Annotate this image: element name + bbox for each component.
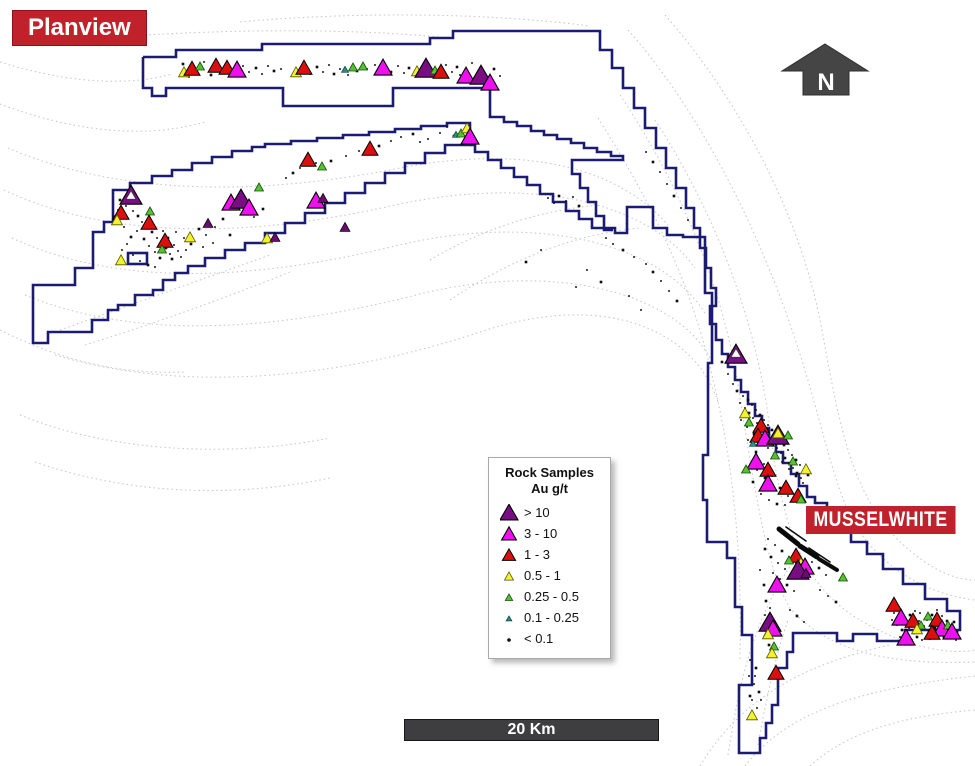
sample-dot bbox=[769, 607, 771, 609]
legend-item-label: < 0.1 bbox=[524, 631, 553, 646]
sample-dot bbox=[752, 417, 754, 419]
planview-map-figure: Planview N MUSSELWHITE Rock Samples Au g… bbox=[0, 0, 975, 766]
sample-dot bbox=[190, 243, 193, 246]
legend-subtitle: Au g/t bbox=[489, 481, 610, 497]
sample-dot bbox=[299, 167, 301, 169]
scale-bar: 20 Km bbox=[404, 719, 659, 741]
sample-dot bbox=[752, 481, 755, 484]
sample-dot bbox=[175, 231, 177, 233]
sample-dot bbox=[763, 463, 765, 465]
sample-dot bbox=[471, 62, 473, 64]
sample-dot bbox=[747, 399, 750, 402]
sample-dot bbox=[408, 67, 411, 70]
sample-dot bbox=[374, 64, 376, 66]
sample-dot bbox=[765, 600, 768, 603]
sample-dot bbox=[936, 609, 938, 611]
sample-dot bbox=[893, 612, 895, 614]
sample-dot bbox=[676, 300, 679, 303]
sample-triangle bbox=[340, 222, 350, 231]
sample-dot bbox=[660, 280, 662, 282]
sample-dot bbox=[540, 249, 542, 251]
sample-triangle bbox=[359, 62, 368, 70]
sample-triangle bbox=[196, 62, 205, 70]
sample-dot bbox=[754, 675, 756, 677]
sample-dot bbox=[746, 426, 748, 428]
sample-dot bbox=[214, 226, 216, 228]
sample-dot bbox=[119, 199, 122, 202]
legend-item: 0.1 - 0.25 bbox=[489, 607, 610, 628]
sample-dot bbox=[760, 699, 762, 701]
sample-dot bbox=[154, 266, 156, 268]
sample-dot bbox=[229, 234, 232, 237]
sample-dot bbox=[248, 71, 250, 73]
north-arrow: N bbox=[778, 40, 874, 107]
sample-dot bbox=[901, 629, 904, 632]
sample-dot bbox=[427, 138, 429, 140]
sample-dot bbox=[891, 619, 893, 621]
sample-triangle bbox=[349, 63, 358, 71]
sample-dot bbox=[210, 74, 213, 77]
sample-dot bbox=[767, 447, 769, 449]
sample-dot bbox=[572, 196, 574, 198]
boundary-top-band-south bbox=[143, 57, 623, 230]
sample-triangle bbox=[146, 207, 155, 215]
sample-dot bbox=[397, 65, 399, 67]
sample-dot bbox=[795, 475, 798, 478]
sample-dot bbox=[575, 286, 577, 288]
sample-dot bbox=[818, 567, 821, 570]
legend-swatch-icon bbox=[500, 630, 524, 648]
sample-dot bbox=[419, 141, 421, 143]
sample-dot bbox=[132, 254, 134, 256]
legend-item: 3 - 10 bbox=[489, 523, 610, 544]
sample-dot bbox=[680, 207, 682, 209]
sample-triangle bbox=[318, 162, 327, 170]
sample-triangle bbox=[141, 215, 157, 229]
sample-triangle bbox=[342, 66, 349, 72]
sample-dot bbox=[748, 675, 750, 677]
sample-dot bbox=[793, 590, 795, 592]
sample-triangle bbox=[770, 642, 779, 650]
sample-dot bbox=[171, 258, 174, 261]
sample-dot bbox=[645, 151, 647, 153]
sample-dot bbox=[727, 373, 729, 375]
sample-dot bbox=[918, 620, 920, 622]
sample-triangle bbox=[362, 141, 378, 155]
sample-triangle bbox=[747, 453, 765, 469]
legend-item-label: 0.1 - 0.25 bbox=[524, 610, 579, 625]
sample-dot bbox=[781, 461, 783, 463]
sample-dot bbox=[316, 66, 319, 69]
sample-dot bbox=[786, 584, 789, 587]
sample-dot bbox=[328, 64, 330, 66]
sample-dot bbox=[141, 221, 143, 223]
sample-dot bbox=[673, 195, 676, 198]
legend-swatch-icon bbox=[500, 546, 524, 564]
sample-dot bbox=[659, 171, 661, 173]
sample-dot bbox=[921, 639, 923, 641]
sample-dot bbox=[222, 218, 225, 221]
sample-dot bbox=[330, 160, 333, 163]
sample-dot bbox=[578, 205, 581, 208]
sample-dot bbox=[756, 707, 758, 709]
sample-dot bbox=[198, 228, 201, 231]
sample-dot bbox=[151, 231, 154, 234]
musselwhite-label: MUSSELWHITE bbox=[814, 508, 948, 531]
sample-dot bbox=[645, 263, 647, 265]
sample-dot bbox=[212, 242, 214, 244]
sample-dot bbox=[439, 132, 441, 134]
sample-dot bbox=[827, 595, 829, 597]
sample-dot bbox=[687, 219, 689, 221]
sample-dot bbox=[205, 234, 207, 236]
sample-dot bbox=[322, 71, 324, 73]
sample-dot bbox=[162, 230, 164, 232]
sample-dot bbox=[333, 73, 336, 76]
sample-dot bbox=[292, 172, 295, 175]
legend-item: 0.5 - 1 bbox=[489, 565, 610, 586]
sample-dot bbox=[586, 269, 588, 271]
boundary-exclusion-hole bbox=[128, 253, 147, 264]
sample-dot bbox=[185, 249, 187, 251]
sample-dot bbox=[666, 183, 668, 185]
sample-dot bbox=[742, 395, 744, 397]
sample-dot bbox=[802, 482, 804, 484]
sample-dot bbox=[347, 74, 349, 76]
sample-dot bbox=[652, 161, 655, 164]
sample-dot bbox=[825, 574, 827, 576]
sample-dot bbox=[953, 621, 956, 624]
legend-swatch-icon bbox=[500, 588, 524, 606]
sample-triangle bbox=[300, 152, 316, 166]
sample-dot bbox=[784, 568, 786, 570]
sample-dot bbox=[772, 572, 774, 574]
sample-dot bbox=[445, 64, 447, 66]
sample-dot bbox=[736, 390, 739, 393]
sample-dot bbox=[909, 614, 912, 617]
sample-triangle bbox=[116, 255, 127, 265]
sample-dot bbox=[755, 667, 758, 670]
sample-dot bbox=[931, 614, 934, 617]
legend-item-label: > 10 bbox=[524, 505, 550, 520]
sample-dot bbox=[280, 68, 282, 70]
scale-bar-label: 20 Km bbox=[507, 721, 555, 738]
sample-dot bbox=[758, 691, 761, 694]
sample-dot bbox=[784, 457, 787, 460]
legend-item-label: 0.5 - 1 bbox=[524, 568, 561, 583]
sample-dot bbox=[747, 439, 749, 441]
sample-dot bbox=[139, 260, 141, 262]
sample-dot bbox=[759, 414, 762, 417]
sample-dot bbox=[182, 63, 185, 66]
legend-box: Rock Samples Au g/t > 103 - 101 - 30.5 -… bbox=[488, 457, 611, 659]
sample-dot bbox=[261, 73, 263, 75]
sample-triangle bbox=[203, 218, 213, 227]
sample-dot bbox=[183, 237, 185, 239]
sample-dot bbox=[136, 230, 138, 232]
sample-dot bbox=[788, 468, 790, 470]
sample-dot bbox=[202, 246, 204, 248]
sample-dot bbox=[784, 504, 786, 506]
sample-dot bbox=[751, 404, 753, 406]
sample-dot bbox=[203, 61, 205, 63]
sample-dot bbox=[755, 409, 757, 411]
sample-dot bbox=[242, 65, 244, 67]
sample-dot bbox=[345, 155, 347, 157]
sample-dot bbox=[558, 195, 561, 198]
sample-dot bbox=[339, 68, 341, 70]
sample-dot bbox=[787, 449, 789, 451]
sample-dot bbox=[622, 249, 625, 252]
north-arrow-label: N bbox=[817, 69, 834, 96]
sample-dot bbox=[732, 383, 734, 385]
sample-dot bbox=[768, 644, 771, 647]
sample-triangle bbox=[784, 431, 793, 439]
sample-dot bbox=[525, 261, 528, 264]
sample-dot bbox=[262, 208, 265, 211]
boundary-southwest-arm bbox=[33, 123, 470, 343]
sample-dot bbox=[273, 70, 276, 73]
sample-dot bbox=[835, 601, 838, 604]
sample-dot bbox=[154, 251, 156, 253]
sample-dot bbox=[753, 683, 755, 685]
sample-triangle bbox=[768, 576, 786, 592]
sample-dot bbox=[255, 67, 258, 70]
sample-dot bbox=[169, 253, 171, 255]
sample-dot bbox=[125, 205, 127, 207]
sample-dot bbox=[547, 197, 549, 199]
sample-dot bbox=[792, 467, 794, 469]
sample-triangle bbox=[839, 573, 848, 581]
sample-dot bbox=[811, 561, 813, 563]
sample-triangle bbox=[801, 464, 812, 474]
sample-dot bbox=[767, 538, 769, 540]
sample-triangle bbox=[185, 232, 196, 242]
sample-dot bbox=[600, 281, 603, 284]
sample-dot bbox=[800, 477, 802, 479]
sample-dot bbox=[749, 659, 751, 661]
legend-items: > 103 - 101 - 30.5 - 10.25 - 0.50.1 - 0.… bbox=[489, 502, 610, 649]
sample-dot bbox=[378, 145, 381, 148]
sample-triangle bbox=[886, 597, 902, 611]
sample-dot bbox=[132, 210, 134, 212]
sample-dot bbox=[739, 402, 741, 404]
sample-dot bbox=[803, 621, 805, 623]
sample-dot bbox=[763, 584, 766, 587]
sample-dot bbox=[819, 589, 821, 591]
sample-dot bbox=[553, 202, 555, 204]
legend-item: > 10 bbox=[489, 502, 610, 523]
sample-dot bbox=[493, 68, 496, 71]
sample-dot bbox=[267, 65, 269, 67]
sample-dot bbox=[148, 245, 150, 247]
sample-dot bbox=[668, 290, 670, 292]
sample-dot bbox=[285, 177, 287, 179]
legend-item-label: 3 - 10 bbox=[524, 526, 557, 541]
planview-title: Planview bbox=[28, 14, 131, 41]
sample-dot bbox=[770, 556, 773, 559]
sample-dot bbox=[764, 614, 766, 616]
sample-dot bbox=[358, 150, 360, 152]
sample-dot bbox=[640, 309, 642, 311]
sample-dot bbox=[789, 609, 791, 611]
sample-dot bbox=[799, 464, 801, 466]
sample-dot bbox=[253, 216, 255, 218]
sample-triangle bbox=[255, 183, 264, 191]
sample-dot bbox=[771, 429, 774, 432]
north-arrow-icon: N bbox=[778, 40, 874, 102]
sample-dot bbox=[628, 295, 630, 297]
sample-dot bbox=[763, 419, 765, 421]
sample-dot bbox=[777, 562, 779, 564]
sample-dot bbox=[123, 226, 125, 228]
sample-dot bbox=[914, 610, 916, 612]
sample-triangle bbox=[374, 59, 392, 75]
sample-dot bbox=[764, 548, 767, 551]
sample-dot bbox=[451, 71, 453, 73]
sample-dot bbox=[652, 271, 655, 274]
sample-dot bbox=[605, 237, 607, 239]
sample-dot bbox=[499, 75, 501, 77]
sample-dot bbox=[126, 243, 128, 245]
legend-item-label: 0.25 - 0.5 bbox=[524, 589, 579, 604]
legend-swatch-icon bbox=[500, 525, 524, 543]
sample-dot bbox=[403, 72, 405, 74]
legend-swatch-icon bbox=[500, 567, 524, 585]
sample-dot bbox=[121, 249, 123, 251]
legend-item: < 0.1 bbox=[489, 628, 610, 649]
sample-dot bbox=[565, 200, 567, 202]
sample-dot bbox=[796, 615, 799, 618]
sample-dot bbox=[781, 550, 784, 553]
sample-dot bbox=[760, 493, 762, 495]
sample-dot bbox=[177, 250, 179, 252]
sample-dot bbox=[721, 361, 724, 364]
sample-dot bbox=[740, 419, 742, 421]
sample-dot bbox=[130, 236, 133, 239]
sample-dot bbox=[315, 162, 317, 164]
sample-dot bbox=[751, 699, 753, 701]
sample-dot bbox=[143, 238, 146, 241]
sample-dot bbox=[916, 636, 919, 639]
sample-dot bbox=[774, 544, 776, 546]
sample-dot bbox=[612, 243, 614, 245]
sample-triangle bbox=[745, 418, 754, 426]
legend-swatch-icon bbox=[500, 609, 524, 627]
sample-dot bbox=[156, 237, 158, 239]
sample-dot bbox=[749, 695, 752, 698]
sample-triangle bbox=[296, 60, 312, 74]
sample-dot bbox=[791, 454, 793, 456]
sample-dot bbox=[456, 66, 459, 69]
sample-dot bbox=[180, 256, 182, 258]
sample-dot bbox=[780, 452, 782, 454]
sample-triangle bbox=[747, 710, 758, 720]
sample-dot bbox=[796, 472, 799, 475]
legend-swatch-icon bbox=[500, 504, 524, 522]
sample-dot bbox=[446, 126, 448, 128]
legend-item-label: 1 - 3 bbox=[524, 547, 550, 562]
sample-dot bbox=[633, 256, 635, 258]
sample-dot bbox=[390, 140, 392, 142]
sample-triangle bbox=[753, 418, 769, 432]
sample-dot bbox=[137, 215, 140, 218]
sample-dot bbox=[787, 495, 789, 497]
sample-triangle bbox=[759, 475, 777, 491]
sample-dot bbox=[919, 612, 921, 614]
sample-dot bbox=[759, 569, 761, 571]
sample-dot bbox=[400, 136, 402, 138]
sample-dot bbox=[767, 424, 769, 426]
sample-dot bbox=[159, 257, 162, 260]
legend-item: 0.25 - 0.5 bbox=[489, 586, 610, 607]
sample-dot bbox=[768, 499, 770, 501]
musselwhite-mine-badge: MUSSELWHITE bbox=[806, 506, 955, 534]
sample-dot bbox=[776, 447, 778, 449]
sample-dot bbox=[147, 264, 150, 267]
legend-item: 1 - 3 bbox=[489, 544, 610, 565]
legend-title: Rock Samples bbox=[489, 465, 610, 481]
sample-dot bbox=[173, 244, 175, 246]
sample-dot bbox=[412, 133, 415, 136]
sample-dot bbox=[941, 615, 943, 617]
planview-title-badge: Planview bbox=[12, 10, 147, 46]
sample-triangle bbox=[157, 233, 173, 247]
sample-dot bbox=[776, 503, 779, 506]
